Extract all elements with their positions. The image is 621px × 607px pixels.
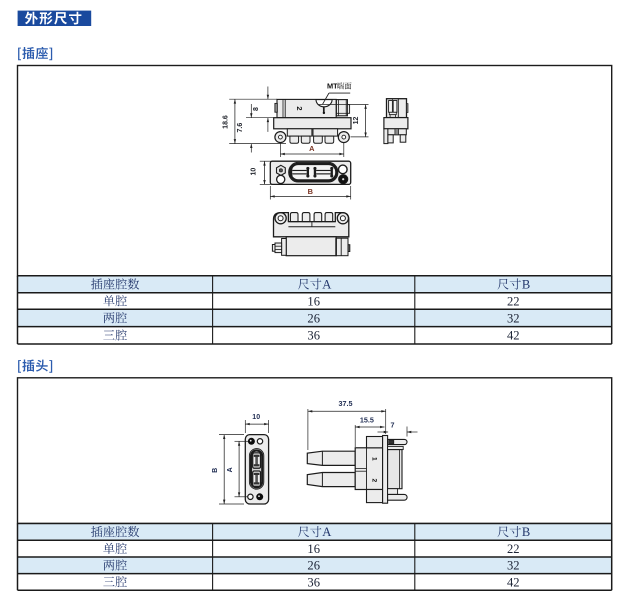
svg-text:42: 42 bbox=[507, 329, 520, 343]
svg-text:26: 26 bbox=[307, 311, 320, 325]
svg-text:36: 36 bbox=[307, 329, 320, 343]
svg-text:10: 10 bbox=[252, 414, 260, 421]
svg-text:8: 8 bbox=[253, 107, 260, 111]
svg-text:18.6: 18.6 bbox=[223, 115, 230, 129]
svg-text:A: A bbox=[322, 525, 331, 539]
svg-text:A: A bbox=[227, 467, 234, 472]
svg-text:36: 36 bbox=[307, 575, 320, 589]
svg-text:1: 1 bbox=[370, 457, 377, 461]
svg-text:B: B bbox=[522, 525, 530, 539]
svg-text:A: A bbox=[309, 144, 315, 153]
svg-text:2: 2 bbox=[370, 478, 377, 482]
svg-text:16: 16 bbox=[307, 542, 320, 556]
svg-text:7: 7 bbox=[391, 420, 395, 429]
svg-text:37.5: 37.5 bbox=[339, 399, 353, 408]
svg-text:22: 22 bbox=[507, 294, 520, 308]
svg-text:22: 22 bbox=[507, 542, 520, 556]
svg-text:B: B bbox=[308, 187, 313, 196]
svg-text:A: A bbox=[322, 278, 331, 292]
svg-text:12: 12 bbox=[353, 117, 360, 125]
svg-text:16: 16 bbox=[307, 294, 320, 308]
svg-text:32: 32 bbox=[507, 311, 520, 325]
svg-text:15.5: 15.5 bbox=[360, 416, 374, 425]
svg-text:2: 2 bbox=[295, 106, 304, 110]
svg-text:7.6: 7.6 bbox=[237, 123, 244, 133]
svg-text:26: 26 bbox=[307, 559, 320, 573]
svg-text:MT: MT bbox=[327, 82, 338, 91]
svg-text:42: 42 bbox=[507, 575, 520, 589]
svg-text:32: 32 bbox=[507, 559, 520, 573]
svg-text:B: B bbox=[212, 468, 219, 473]
svg-text:10: 10 bbox=[250, 168, 257, 176]
svg-text:B: B bbox=[522, 278, 530, 292]
